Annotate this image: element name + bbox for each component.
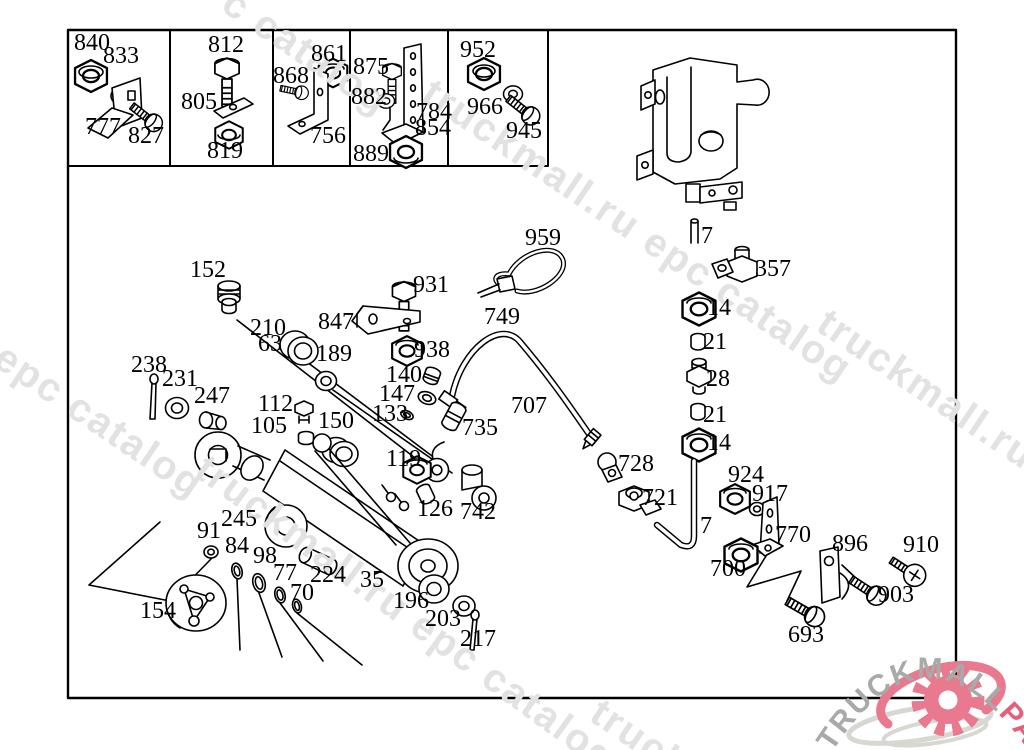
part-label-14[interactable]: 14 <box>707 296 731 320</box>
part-label-931[interactable]: 931 <box>413 273 449 297</box>
part-label-861[interactable]: 861 <box>311 42 347 66</box>
part-label-875[interactable]: 875 <box>353 55 389 79</box>
part-label-7[interactable]: 7 <box>700 514 712 538</box>
part-label-152[interactable]: 152 <box>190 258 226 282</box>
part-label-133[interactable]: 133 <box>372 402 408 426</box>
part-label-827[interactable]: 827 <box>128 124 164 148</box>
part-label-224[interactable]: 224 <box>310 563 346 587</box>
part-label-749[interactable]: 749 <box>484 305 520 329</box>
part-label-21[interactable]: 21 <box>703 330 727 354</box>
part-label-812[interactable]: 812 <box>208 33 244 57</box>
part-label-945[interactable]: 945 <box>506 119 542 143</box>
part-label-756[interactable]: 756 <box>310 124 346 148</box>
part-label-728[interactable]: 728 <box>618 452 654 476</box>
part-label-247[interactable]: 247 <box>194 384 230 408</box>
part-label-84[interactable]: 84 <box>225 534 249 558</box>
part-label-805[interactable]: 805 <box>181 90 217 114</box>
part-label-189[interactable]: 189 <box>316 342 352 366</box>
part-label-7[interactable]: 7 <box>701 224 713 248</box>
part-label-700[interactable]: 700 <box>710 557 746 581</box>
part-label-154[interactable]: 154 <box>140 599 176 623</box>
part-label-91[interactable]: 91 <box>197 519 221 543</box>
part-label-903[interactable]: 903 <box>878 583 914 607</box>
part-label-21[interactable]: 21 <box>703 403 727 427</box>
part-label-959[interactable]: 959 <box>525 226 561 250</box>
part-label-14[interactable]: 14 <box>707 431 731 455</box>
part-label-938[interactable]: 938 <box>414 338 450 362</box>
part-label-35[interactable]: 35 <box>360 568 384 592</box>
part-label-217[interactable]: 217 <box>460 627 496 651</box>
part-label-203[interactable]: 203 <box>425 607 461 631</box>
part-label-245[interactable]: 245 <box>221 507 257 531</box>
part-label-735[interactable]: 735 <box>462 416 498 440</box>
part-label-777[interactable]: 777 <box>85 115 121 139</box>
part-label-196[interactable]: 196 <box>393 589 429 613</box>
part-label-357[interactable]: 357 <box>755 257 791 281</box>
part-label-742[interactable]: 742 <box>460 500 496 524</box>
part-label-896[interactable]: 896 <box>832 532 868 556</box>
part-label-917[interactable]: 917 <box>752 482 788 506</box>
part-label-693[interactable]: 693 <box>788 623 824 647</box>
part-label-868[interactable]: 868 <box>273 64 309 88</box>
part-label-126[interactable]: 126 <box>417 497 453 521</box>
part-label-105[interactable]: 105 <box>251 414 287 438</box>
part-label-707[interactable]: 707 <box>511 394 547 418</box>
part-label-847[interactable]: 847 <box>318 310 354 334</box>
part-label-770[interactable]: 770 <box>775 523 811 547</box>
part-label-231[interactable]: 231 <box>162 367 198 391</box>
part-label-889[interactable]: 889 <box>353 142 389 166</box>
part-label-882[interactable]: 882 <box>351 85 387 109</box>
part-label-966[interactable]: 966 <box>467 95 503 119</box>
part-label-28[interactable]: 28 <box>706 367 730 391</box>
part-label-150[interactable]: 150 <box>318 409 354 433</box>
part-label-63[interactable]: 63 <box>258 332 282 356</box>
part-label-119[interactable]: 119 <box>386 447 421 471</box>
part-label-952[interactable]: 952 <box>460 38 496 62</box>
catalog-diagram-page: c catalogtruckmall.ru epc catalogl epc c… <box>0 0 1024 750</box>
part-label-833[interactable]: 833 <box>103 44 139 68</box>
part-label-910[interactable]: 910 <box>903 533 939 557</box>
part-label-819[interactable]: 819 <box>207 139 243 163</box>
part-label-721[interactable]: 721 <box>642 486 678 510</box>
part-labels-layer: 8408337778278128058198688617568758827848… <box>0 0 1024 750</box>
part-label-854[interactable]: 854 <box>415 116 451 140</box>
